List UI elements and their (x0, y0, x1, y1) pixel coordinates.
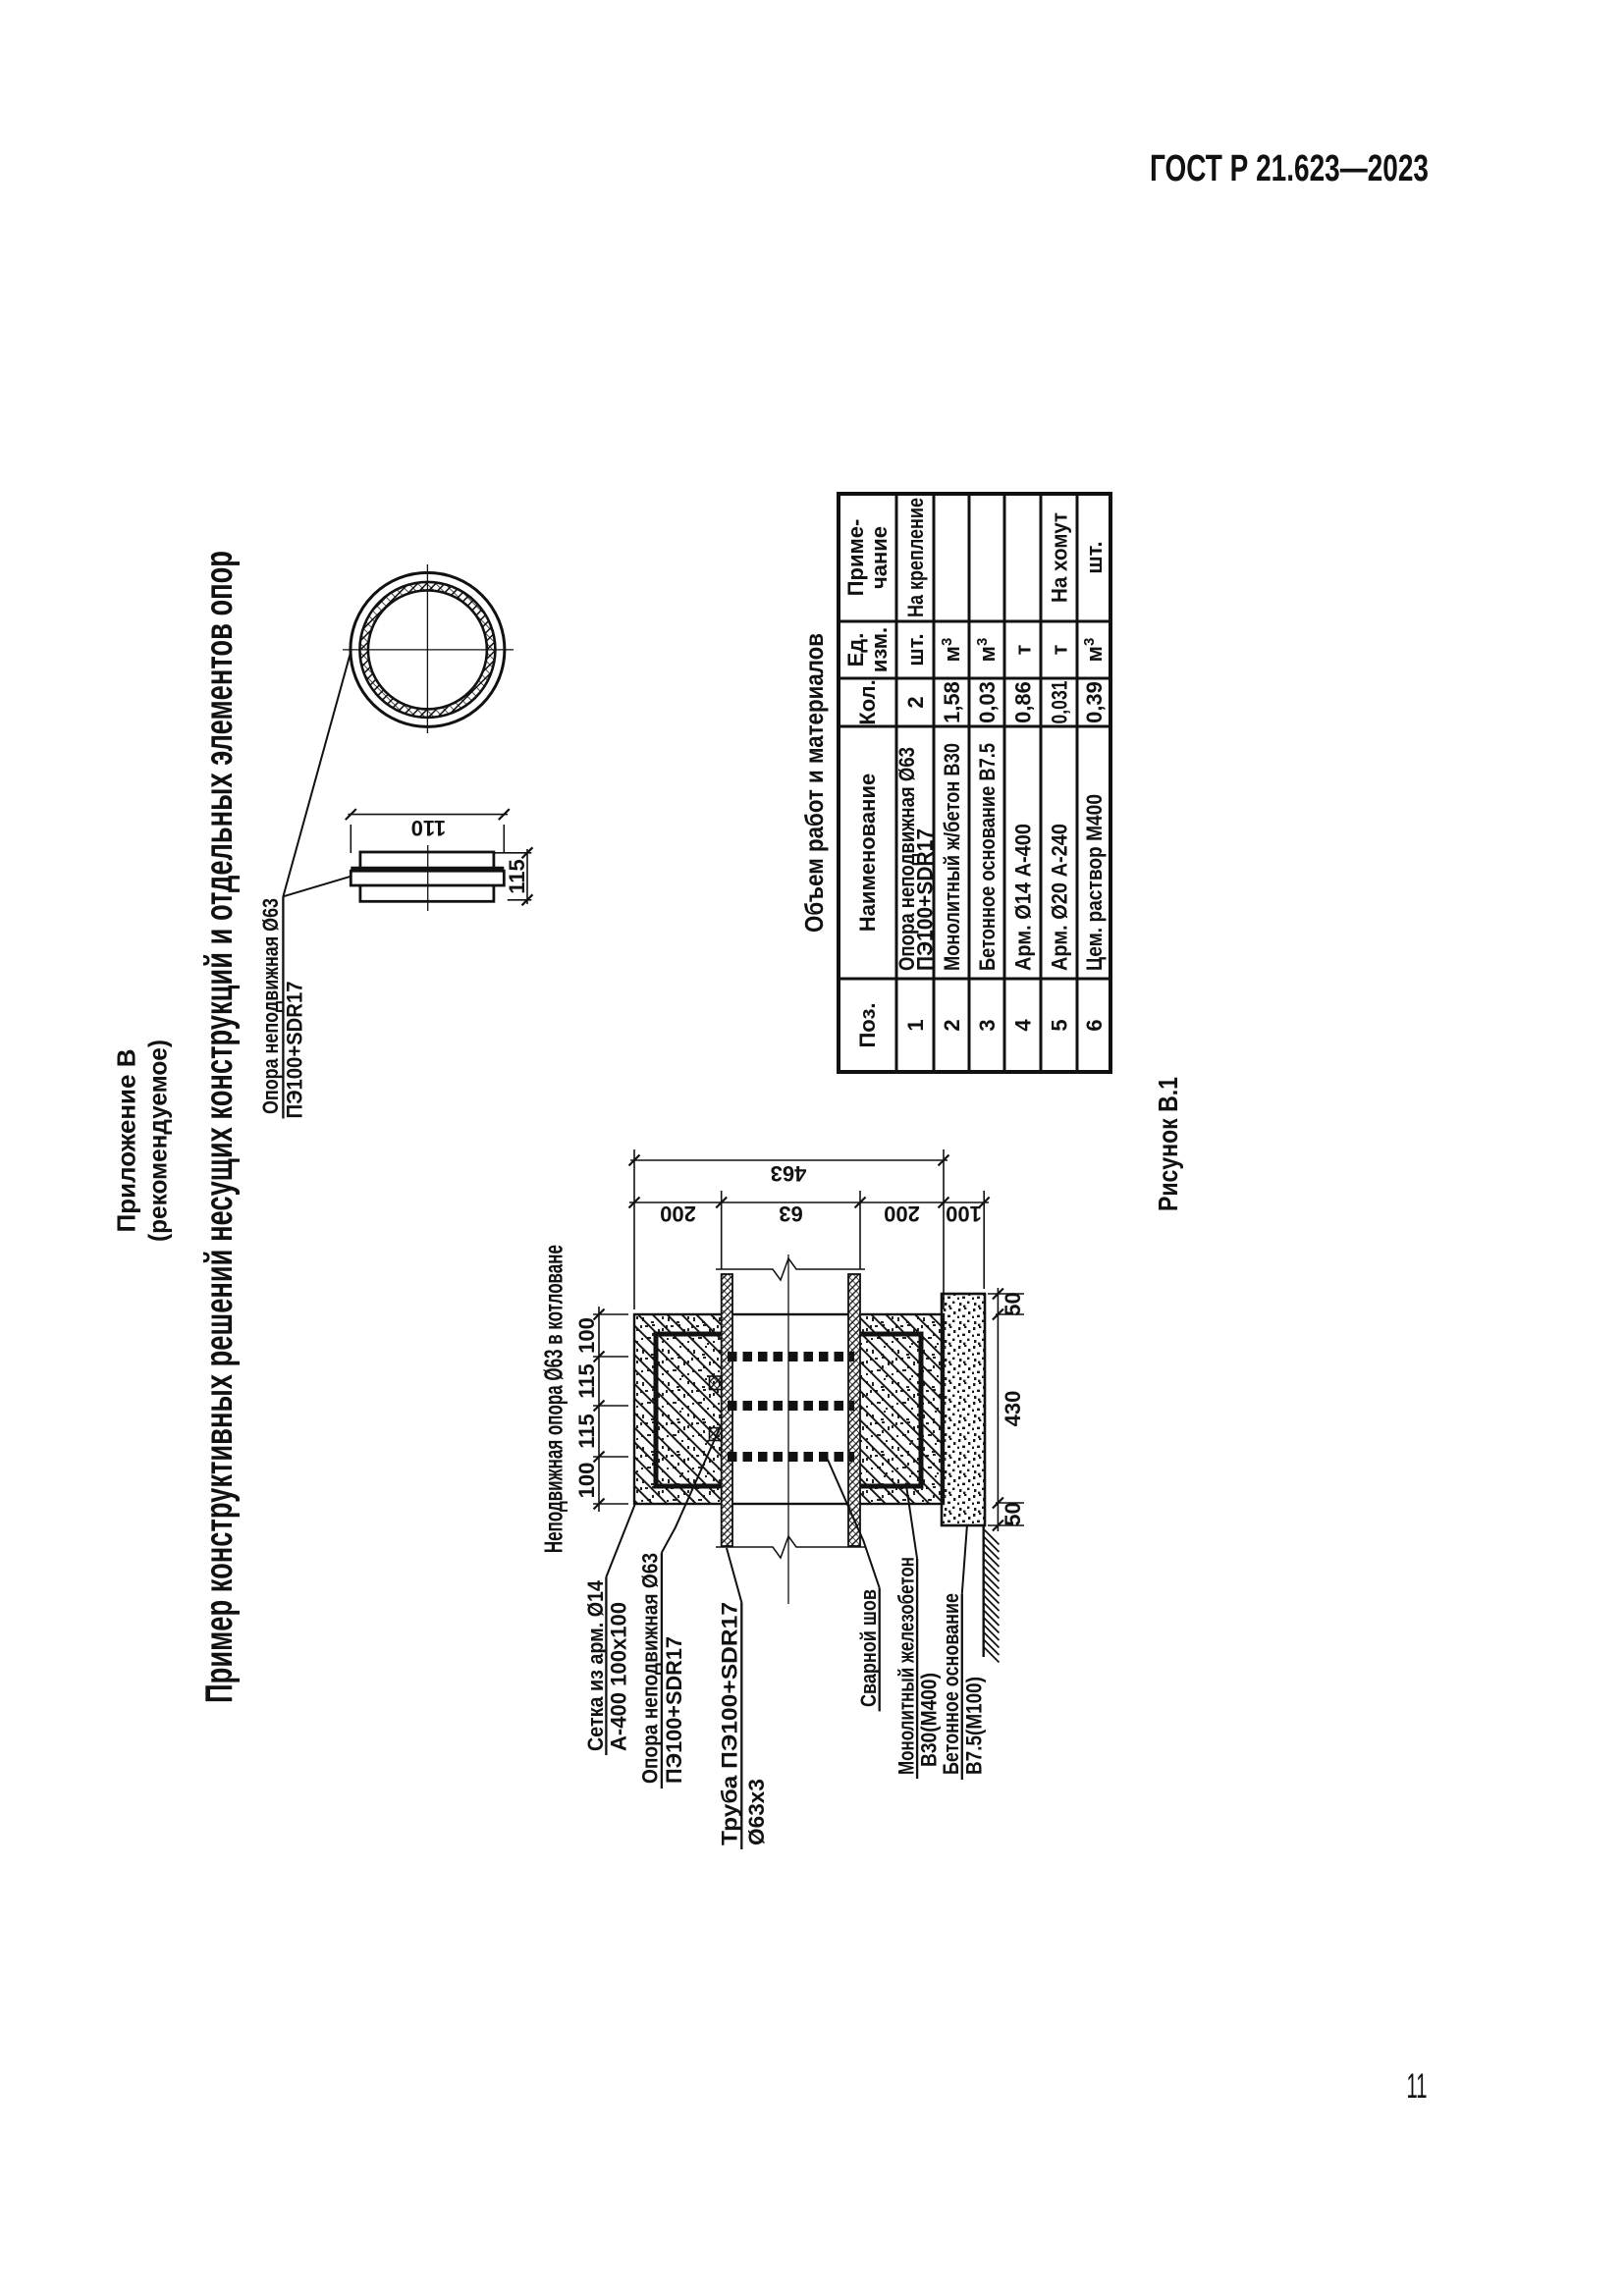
svg-text:шт.: шт. (903, 633, 928, 666)
svg-text:110: 110 (411, 816, 447, 840)
svg-text:Бетонное основание: Бетонное основание (939, 1593, 963, 1775)
svg-text:115: 115 (574, 1363, 599, 1399)
svg-text:Рисунок В.1: Рисунок В.1 (1153, 1077, 1183, 1211)
svg-text:В30(М400): В30(М400) (917, 1673, 942, 1767)
svg-text:ГОСТ Р 21.623—2023: ГОСТ Р 21.623—2023 (1150, 148, 1429, 189)
svg-text:Кол.: Кол. (855, 679, 880, 724)
svg-text:Сетка из арм. Ø14: Сетка из арм. Ø14 (583, 1579, 608, 1751)
svg-text:200: 200 (660, 1201, 696, 1226)
svg-text:Опора неподвижная Ø63: Опора неподвижная Ø63 (638, 1553, 663, 1784)
svg-text:м3: м3 (1081, 638, 1107, 663)
svg-text:Монолитный ж/бетон В30: Монолитный ж/бетон В30 (940, 743, 964, 971)
svg-text:ПЭ100+SDR17: ПЭ100+SDR17 (913, 828, 938, 971)
svg-text:6: 6 (1082, 1019, 1107, 1031)
svg-text:Монолитный железобетон: Монолитный железобетон (894, 1557, 919, 1775)
svg-text:чание: чание (867, 526, 892, 589)
svg-text:Опора неподвижная Ø63: Опора неподвижная Ø63 (258, 898, 283, 1114)
svg-text:(рекомендуемое): (рекомендуемое) (143, 1040, 173, 1242)
svg-text:ПЭ100+SDR17: ПЭ100+SDR17 (283, 982, 307, 1119)
svg-text:м3: м3 (974, 638, 1000, 663)
svg-text:2: 2 (940, 1019, 964, 1031)
svg-text:0,86: 0,86 (1011, 681, 1036, 723)
svg-text:50: 50 (1001, 1502, 1025, 1525)
svg-text:115: 115 (574, 1414, 599, 1449)
svg-text:Поз.: Поз. (855, 1002, 880, 1047)
svg-text:Приложение В: Приложение В (112, 1049, 141, 1233)
svg-text:изм.: изм. (867, 627, 892, 672)
svg-text:Арм. Ø14 А-400: Арм. Ø14 А-400 (1011, 824, 1036, 971)
svg-text:Пример конструктивных решений: Пример конструктивных решений несущих ко… (198, 551, 241, 1703)
svg-text:м3: м3 (939, 638, 964, 663)
svg-text:Цем. раствор М400: Цем. раствор М400 (1082, 794, 1107, 971)
svg-text:Ед.: Ед. (843, 633, 868, 667)
svg-text:115: 115 (505, 859, 529, 894)
svg-text:100: 100 (574, 1463, 599, 1499)
svg-text:50: 50 (1001, 1292, 1025, 1315)
svg-text:ПЭ100+SDR17: ПЭ100+SDR17 (662, 1636, 686, 1784)
svg-text:0,031: 0,031 (1048, 681, 1072, 724)
svg-text:Наименование: Наименование (855, 774, 880, 932)
svg-text:1,58: 1,58 (940, 681, 964, 723)
svg-text:63: 63 (779, 1201, 802, 1226)
svg-text:100: 100 (574, 1317, 599, 1354)
svg-text:5: 5 (1048, 1019, 1072, 1031)
svg-text:т: т (1048, 644, 1072, 655)
svg-text:Неподвижная опора Ø63 в котло: Неподвижная опора Ø63 в котловане (539, 1245, 568, 1553)
svg-text:200: 200 (884, 1201, 920, 1226)
svg-text:2: 2 (903, 696, 928, 708)
svg-text:На хомут: На хомут (1048, 512, 1072, 603)
svg-text:11: 11 (1407, 2067, 1428, 2106)
svg-text:т: т (1011, 644, 1036, 655)
svg-text:Бетонное основание В7.5: Бетонное основание В7.5 (975, 743, 1000, 971)
svg-text:0,39: 0,39 (1082, 681, 1107, 723)
svg-text:Приме-: Приме- (843, 519, 868, 597)
svg-text:Ø63х3: Ø63х3 (744, 1779, 769, 1845)
svg-text:4: 4 (1011, 1019, 1036, 1032)
svg-text:А-400 100х100: А-400 100х100 (607, 1602, 631, 1751)
svg-text:463: 463 (771, 1161, 807, 1186)
svg-text:1: 1 (903, 1019, 928, 1031)
svg-text:430: 430 (1001, 1391, 1025, 1427)
svg-text:Объем работ и материалов: Объем работ и материалов (799, 633, 829, 933)
svg-text:В7.5(М100): В7.5(М100) (962, 1677, 987, 1775)
svg-text:3: 3 (975, 1019, 1000, 1031)
svg-text:Сварной шов: Сварной шов (856, 1589, 881, 1707)
svg-text:100: 100 (946, 1201, 982, 1226)
svg-text:Труба ПЭ100+SDR17: Труба ПЭ100+SDR17 (718, 1602, 742, 1845)
svg-text:Арм. Ø20 А-240: Арм. Ø20 А-240 (1048, 824, 1072, 971)
svg-text:На крепление: На крепление (903, 498, 928, 617)
svg-text:шт.: шт. (1082, 541, 1107, 573)
svg-text:0,03: 0,03 (975, 681, 1000, 723)
